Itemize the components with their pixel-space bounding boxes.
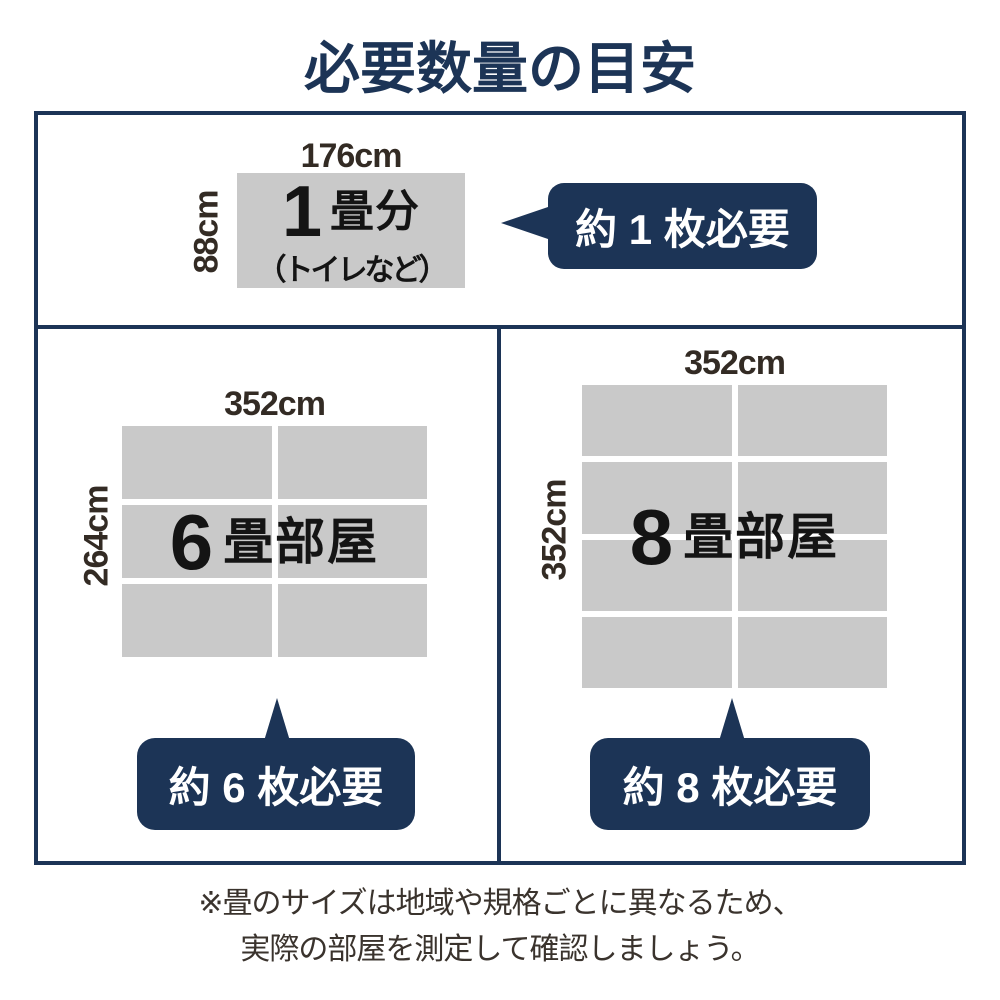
one-tatami-rect: 1 畳分 （トイレなど） <box>237 173 465 288</box>
diagram-frame: 176cm 88cm 1 畳分 （トイレなど） 約 1 枚必要 352cm 26… <box>34 111 966 865</box>
eight-tatami-room-label: 8 畳部屋 <box>582 385 887 688</box>
footer-note-line2: 実際の部屋を測定して確認しましょう。 <box>0 930 1000 970</box>
one-tatami-title: 1 畳分 <box>282 176 420 248</box>
six-tatami-room-label: 6 畳部屋 <box>122 426 427 657</box>
one-tatami-badge: 約 1 枚必要 <box>548 183 817 269</box>
one-tatami-count: 1 <box>282 176 322 248</box>
six-tatami-unit: 畳部屋 <box>223 517 379 567</box>
one-tatami-height-label: 88cm <box>188 191 227 274</box>
one-tatami-width-label: 176cm <box>237 137 465 176</box>
eight-tatami-badge: 約 8 枚必要 <box>590 738 870 830</box>
one-tatami-unit: 畳分 <box>330 190 420 234</box>
eight-tatami-height-label: 352cm <box>536 480 575 581</box>
six-tatami-badge: 約 6 枚必要 <box>137 738 415 830</box>
one-tatami-callout-pointer <box>501 207 548 239</box>
eight-tatami-callout-pointer <box>719 698 745 741</box>
eight-tatami-unit: 畳部屋 <box>683 512 839 562</box>
six-tatami-callout-pointer <box>264 698 290 741</box>
six-tatami-count: 6 <box>170 503 213 581</box>
eight-tatami-count: 8 <box>630 498 673 576</box>
eight-tatami-width-label: 352cm <box>582 344 887 383</box>
vertical-divider <box>497 329 501 861</box>
page-title: 必要数量の目安 <box>0 24 1000 105</box>
one-tatami-note: （トイレなど） <box>257 254 446 287</box>
six-tatami-width-label: 352cm <box>122 385 427 424</box>
footer-note-line1: ※畳のサイズは地域や規格ごとに異なるため、 <box>0 884 1000 924</box>
six-tatami-height-label: 264cm <box>78 486 117 587</box>
